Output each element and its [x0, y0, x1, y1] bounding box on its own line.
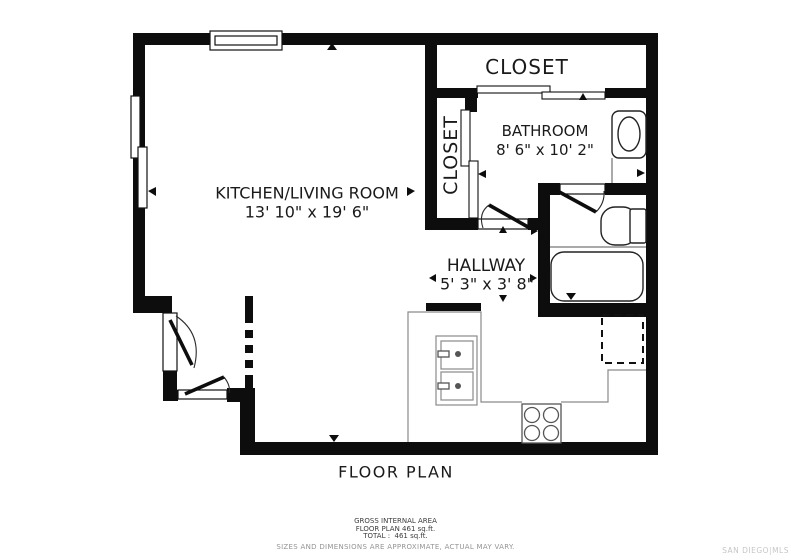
- door-toiletroom-frame: [560, 184, 605, 194]
- wall-kitchen-stub: [426, 303, 481, 311]
- wall-lowerleft-vertical: [240, 388, 255, 455]
- arrow-right-icon: [407, 187, 415, 196]
- closet-top-label: CLOSET: [485, 55, 569, 79]
- wall-entry-jamb: [163, 371, 177, 390]
- arrow-down-icon: [499, 295, 507, 302]
- toilet-tank-icon: [630, 209, 646, 243]
- hallway-dimensions: 5' 3" x 3' 8": [440, 275, 534, 294]
- sidecloset-slider-panel2-icon: [469, 161, 478, 218]
- wall-toiletroom-top-right: [605, 183, 646, 195]
- wall-entry-left: [163, 390, 178, 401]
- window-top-inner: [215, 36, 277, 45]
- closet-slider-panel2-icon: [542, 92, 605, 99]
- closet-slider-panel1-icon: [477, 86, 550, 93]
- arrow-left-icon: [478, 170, 486, 178]
- disclaimer-text: SIZES AND DIMENSIONS ARE APPROXIMATE, AC…: [0, 544, 791, 552]
- kitchen-living-label: KITCHEN/LIVING ROOM: [215, 184, 399, 203]
- bathtub-icon: [551, 252, 643, 301]
- wall-interior-vertical: [425, 45, 437, 230]
- arrow-down-icon: [329, 435, 339, 442]
- bathroom-label: BATHROOM: [502, 122, 589, 140]
- wall-opening-stub-top: [245, 296, 253, 315]
- arrow-left-icon: [148, 187, 156, 196]
- wall-closet-bottom-right: [605, 88, 646, 98]
- floor-plan-page: CLOSET CLOSET BATHROOM 8' 6" x 10' 2" KI…: [0, 0, 791, 560]
- bathroom-dimensions: 8' 6" x 10' 2": [496, 141, 594, 159]
- arrow-right-icon: [637, 169, 645, 177]
- bathroom-sink-basin-icon: [618, 117, 640, 151]
- stove-burner-icon: [525, 408, 540, 423]
- wall-toiletroom-left: [538, 183, 550, 317]
- wall-bottom: [240, 442, 658, 455]
- sink-faucet1-icon: [438, 351, 449, 357]
- stove-burner-icon: [525, 426, 540, 441]
- footer-notes: GROSS INTERNAL AREA FLOOR PLAN 461 sq.ft…: [0, 518, 791, 551]
- stove-burner-icon: [544, 408, 559, 423]
- sink-faucet2-icon: [438, 383, 449, 389]
- arrow-left-icon: [429, 274, 436, 282]
- sink-drain1-icon: [455, 351, 461, 357]
- sink-drain2-icon: [455, 383, 461, 389]
- kitchen-fixtures: [408, 312, 646, 443]
- wall-left-step: [133, 296, 172, 313]
- window-left-pane2-icon: [138, 147, 147, 208]
- refrigerator-dashed-icon: [602, 315, 643, 363]
- wall-bathroom-bottom-left: [437, 218, 478, 230]
- kitchen-living-dimensions: 13' 10" x 19' 6": [245, 203, 370, 222]
- kitchen-sink-unit-icon: [436, 336, 477, 405]
- windows: [131, 31, 282, 208]
- stove-burner-icon: [544, 426, 559, 441]
- wall-right: [646, 33, 658, 455]
- dimension-arrows: [148, 43, 645, 442]
- wall-opening-stub-bottom: [245, 383, 253, 390]
- sidecloset-slider-panel1-icon: [461, 110, 470, 166]
- watermark: SAN DIEGO|MLS: [722, 546, 789, 555]
- closet-side-label: CLOSET: [440, 115, 462, 195]
- hallway-label: HALLWAY: [447, 256, 525, 276]
- total-area-text: TOTAL : 461 sq.ft.: [0, 533, 791, 541]
- wall-closet-bottom-left: [437, 88, 478, 98]
- page-title: FLOOR PLAN: [338, 463, 454, 482]
